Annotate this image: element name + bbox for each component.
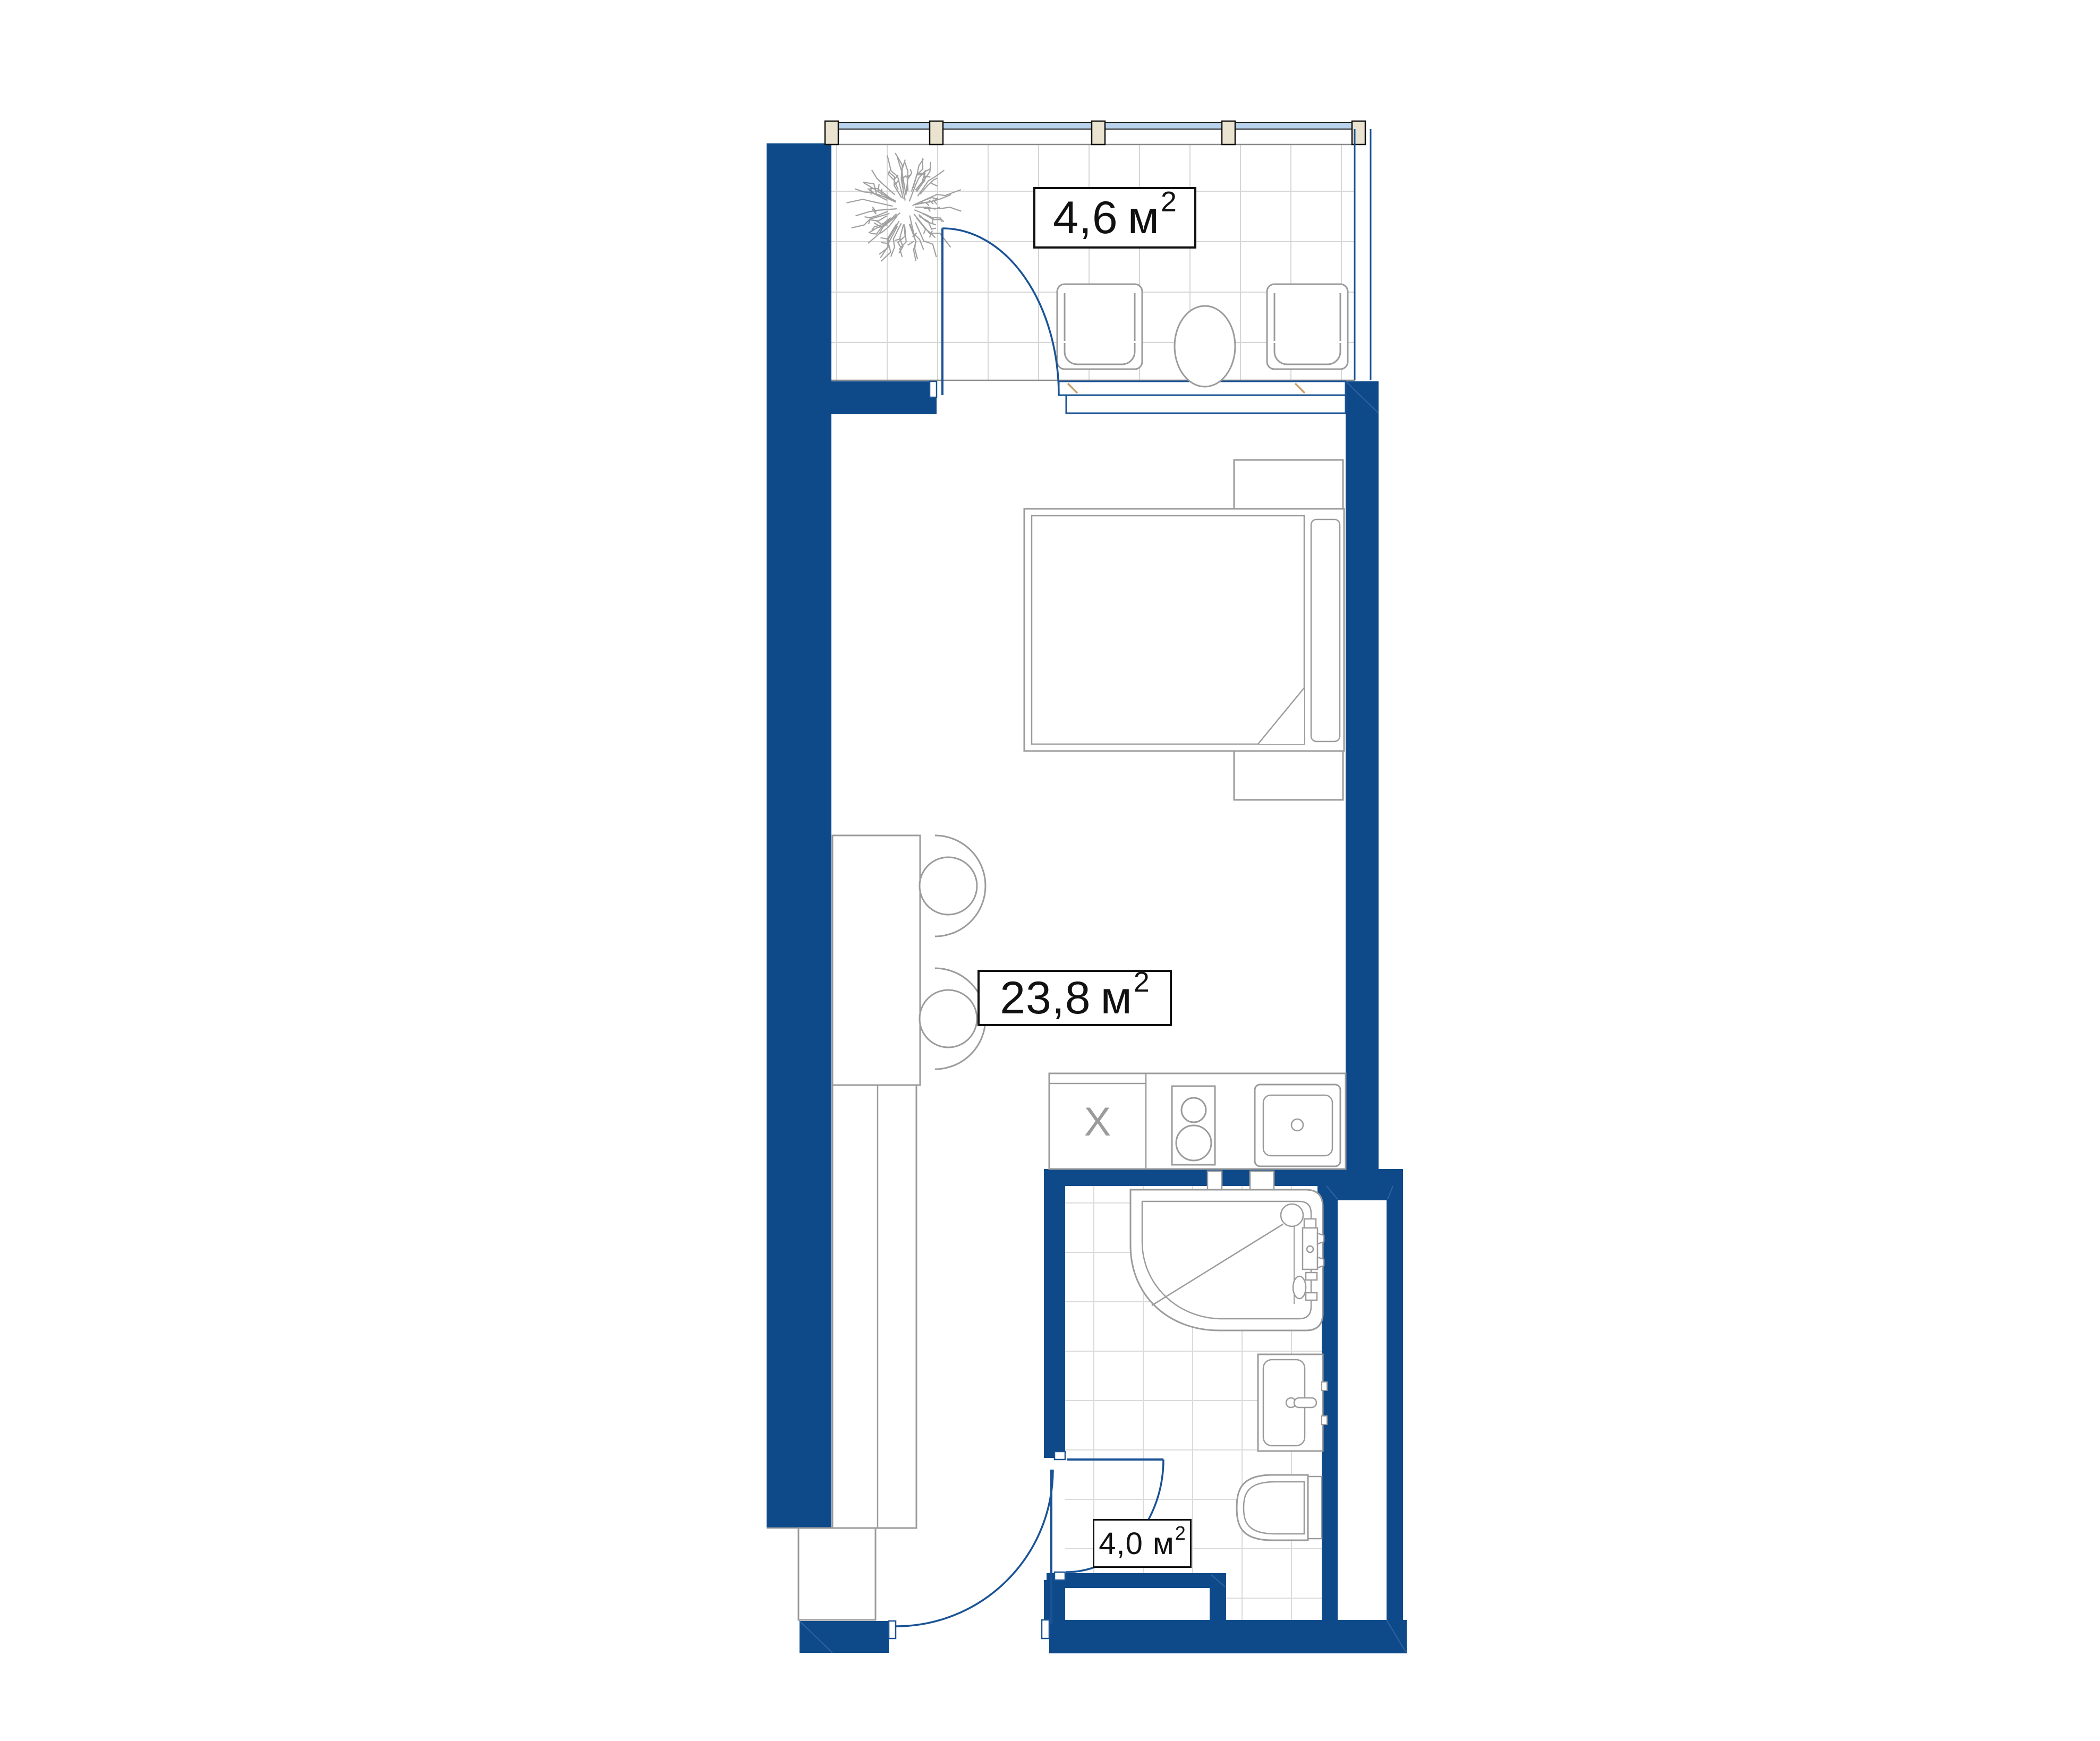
dining-table [832,835,920,1085]
bed-mattress [1032,516,1304,744]
nightstand-bottom [1234,751,1343,800]
balcony-furniture [1057,284,1348,387]
stove [1172,1086,1215,1165]
balcony-door-swing-arc [942,228,1059,395]
bathroom-sink [1258,1354,1327,1451]
nightstand-top [1234,460,1343,509]
balcony-right-frame [1355,129,1371,380]
bathroom-niche-band [1047,1573,1210,1588]
living-area-label: 23,8м2 [977,970,1172,1026]
window-mullion-post [1092,121,1105,144]
left-wall [767,143,831,1528]
balcony-area-label: 4,6м2 [1033,187,1196,249]
bottom-wall-left [800,1621,889,1653]
window-mullion-post [825,121,838,144]
door-jamb-notch [1055,1572,1065,1580]
toilet [1237,1475,1322,1540]
bed-group [1024,460,1344,800]
window-mullion-post [1222,121,1235,144]
window-mullion-post [930,121,943,144]
room-chair-1 [920,835,985,936]
plant-icon [847,153,962,261]
bed-headboard [1311,519,1340,741]
wardrobe-lower [798,1528,875,1620]
door-jamb-notch [889,1621,896,1638]
shower [1130,1190,1324,1330]
room-chair-2 [920,968,985,1069]
balcony-table [1175,306,1235,387]
bottom-wall-right [1049,1620,1407,1653]
kitchen-sink [1255,1085,1340,1166]
kitchen-unit-marker: X [1084,1099,1111,1145]
floor-plan-page: X [0,0,2100,1741]
shaft-right-wall [1387,1199,1403,1620]
bathroom-top-wall [1044,1169,1403,1186]
entrance-door-swing-arc [896,1470,1053,1626]
floor-plan-svg: X [0,0,2100,1741]
bathroom-left-wall-upper [1044,1186,1065,1458]
door-jamb-notch [1042,1620,1049,1638]
door-jamb-notch [930,381,937,397]
balcony-chair-right [1267,284,1348,369]
balcony-chair-left [1057,284,1142,369]
balcony-door [930,228,1059,397]
door-jamb-notch [1055,1452,1065,1460]
wardrobe-upper [832,1085,916,1528]
bathroom-area-label: 4,0м2 [1093,1519,1192,1568]
bathroom-fixtures [1130,1171,1327,1540]
balcony-divider-wall [831,381,937,414]
bottom-niche-void [1065,1588,1210,1620]
right-wall-upper [1346,381,1379,1186]
kitchen: X [1049,1073,1346,1169]
